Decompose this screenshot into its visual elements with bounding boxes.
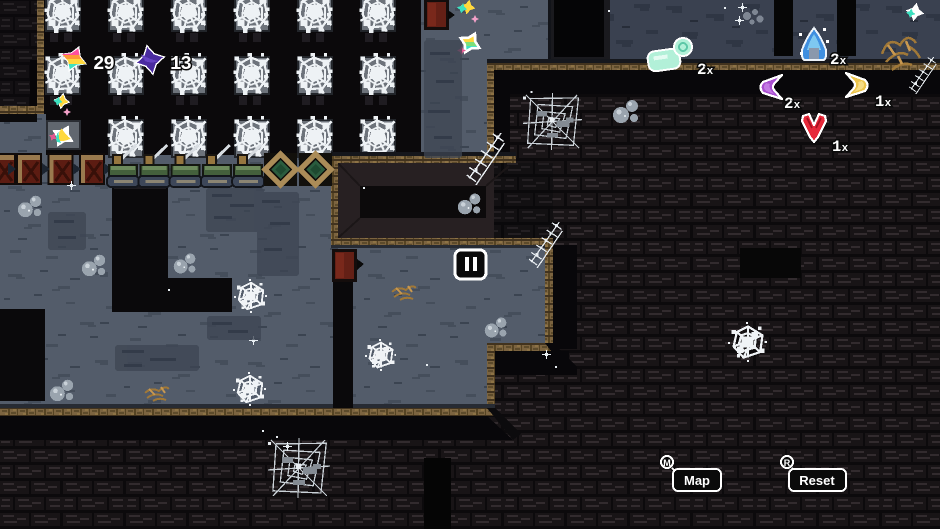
svg-text:R: R	[784, 458, 791, 468]
svg-text:M: M	[663, 458, 671, 468]
svg-text:13: 13	[170, 53, 191, 75]
svg-text:Map: Map	[684, 473, 710, 488]
svg-text:Reset: Reset	[799, 473, 835, 488]
svg-text:29: 29	[93, 53, 114, 75]
